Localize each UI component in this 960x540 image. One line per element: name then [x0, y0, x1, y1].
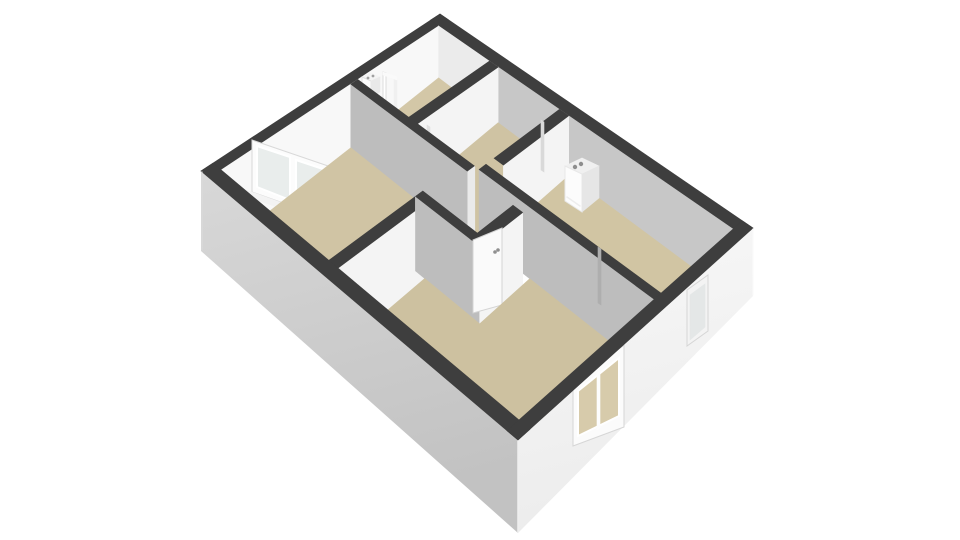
floorplan-3d-render [0, 0, 960, 540]
living-window-mullion [597, 371, 600, 430]
boiler-pipe [573, 165, 577, 169]
cistern-knob [372, 75, 375, 78]
wc-doorframe [394, 77, 397, 108]
doorframe-line [598, 247, 601, 305]
floorplan-layers [201, 14, 753, 533]
interior-door[interactable] [473, 228, 502, 313]
floorplan-canvas[interactable] [0, 0, 960, 540]
boiler-pipe [579, 162, 583, 166]
door-handle [496, 248, 500, 252]
cistern-knob [367, 77, 370, 80]
doorframe-line [541, 120, 544, 172]
door-handle[interactable] [493, 250, 497, 254]
